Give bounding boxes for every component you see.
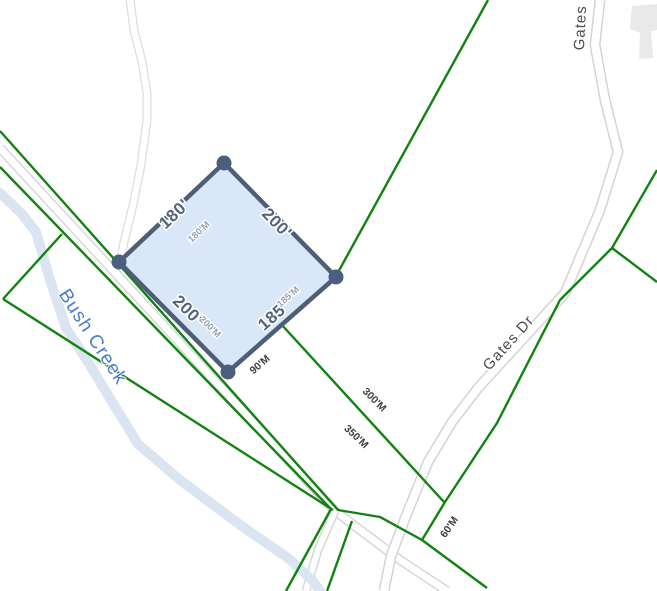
selected-parcel-polygon[interactable] [119, 163, 336, 372]
vertex-handle-west[interactable] [112, 255, 127, 270]
vertex-handle-south[interactable] [221, 365, 236, 380]
map-canvas[interactable]: 180' 180'M 200' 200' 200'M 185' 185'M 90… [0, 0, 657, 591]
measurement-60: 60'M [438, 514, 461, 540]
boundary-line-gates-east [422, 170, 657, 540]
road-name-gates: Gates [571, 5, 590, 51]
measurement-300: 300'M [360, 385, 389, 414]
measurement-350: 350'M [341, 423, 370, 452]
vertex-handle-north[interactable] [217, 156, 232, 171]
gates-dr-road-casing [384, 0, 618, 591]
boundary-line-northeast-diagonal [336, 0, 488, 276]
gates-dr-road-surface [384, 0, 618, 591]
road-name-gates-dr: Gates Dr [480, 312, 538, 374]
measurement-90: 90'M [247, 353, 272, 377]
building-footprint [630, 4, 657, 59]
boundary-line-east-spur [612, 248, 657, 282]
vertex-handle-east[interactable] [329, 270, 344, 285]
